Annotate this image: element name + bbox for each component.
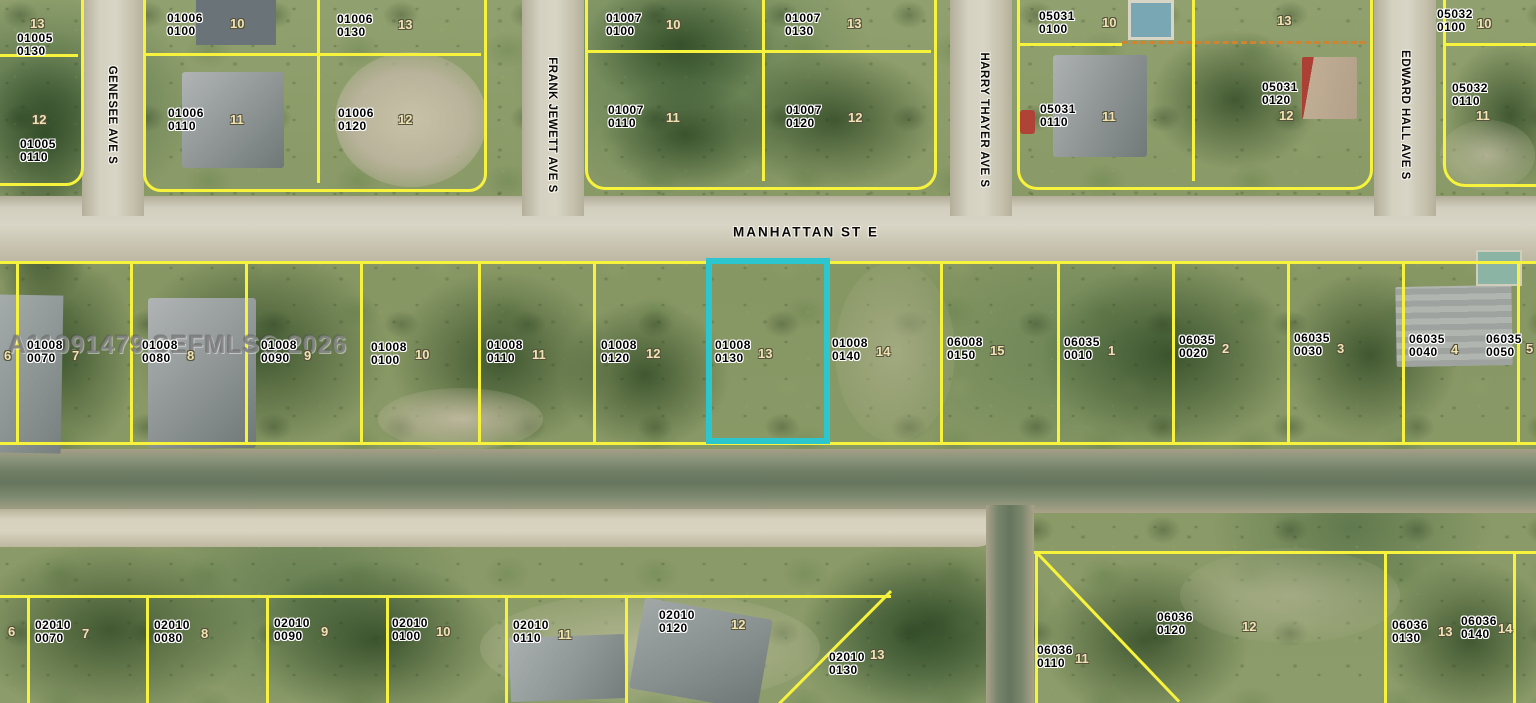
- block-line: [1034, 551, 1536, 554]
- parcel-label-06008-0150: 060080150: [947, 336, 983, 362]
- parcel-label-06035-0020: 060350020: [1179, 334, 1215, 360]
- parcel-label-01008-0080: 010080080: [142, 339, 178, 365]
- parcel-label-06036-0120: 060360120: [1157, 611, 1193, 637]
- street-label-edward-hall-ave-s: EDWARD HALL AVE S: [1399, 50, 1411, 180]
- lot-number: 12: [1279, 108, 1293, 123]
- lot-number: 11: [230, 112, 244, 127]
- lot-number: 13: [1438, 624, 1452, 639]
- lot-line: [27, 596, 30, 703]
- parcel-label-02010-0100: 020100100: [392, 617, 428, 643]
- lot-number: 8: [201, 626, 208, 641]
- parcel-label-02010-0120: 020100120: [659, 609, 695, 635]
- parcel-label-02010-0110: 020100110: [513, 619, 549, 645]
- parcel-label-05031-0120: 050310120: [1262, 81, 1298, 107]
- parcel-label-06036-0130: 060360130: [1392, 619, 1428, 645]
- lot-line: [762, 0, 765, 181]
- parcel-label-01006-0120: 010060120: [338, 107, 374, 133]
- lot-line: [1057, 262, 1060, 442]
- lot-line: [1443, 43, 1536, 46]
- lot-number: 11: [1476, 108, 1490, 123]
- swimming-pool: [1476, 250, 1522, 286]
- parcel-label-06035-0050: 060350050: [1486, 333, 1522, 359]
- parcel-label-05031-0100: 050310100: [1039, 10, 1075, 36]
- clearing-patch: [1180, 548, 1400, 643]
- lot-number: 7: [82, 626, 89, 641]
- parcel-label-01008-0140: 010080140: [832, 337, 868, 363]
- lot-number: 11: [1075, 651, 1089, 666]
- parcel-label-01007-0130: 010070130: [785, 12, 821, 38]
- parcel-label-01008-0070: 010080070: [27, 339, 63, 365]
- parcel-label-01008-0120: 010080120: [601, 339, 637, 365]
- lot-line: [1384, 551, 1387, 703]
- parcel-label-01007-0110: 010070110: [608, 104, 644, 130]
- lot-number: 4: [1451, 342, 1458, 357]
- lot-number: 10: [666, 17, 680, 32]
- lot-line: [146, 596, 149, 703]
- parcel-label-06035-0010: 060350010: [1064, 336, 1100, 362]
- lot-line: [317, 0, 320, 183]
- lot-number: 12: [731, 617, 745, 632]
- lot-number: 13: [847, 16, 861, 31]
- lot-line: [1513, 551, 1516, 703]
- parcel-label-01008-0090: 010080090: [261, 339, 297, 365]
- street-label-frank-jewett-ave-s: FRANK JEWETT AVE S: [546, 57, 558, 193]
- parcel-label-06035-0030: 060350030: [1294, 332, 1330, 358]
- dashed-boundary-line: [1122, 41, 1366, 44]
- lot-line: [1402, 262, 1405, 442]
- parcel-label-05032-0100: 050320100: [1437, 8, 1473, 34]
- parcel-label-06035-0040: 060350040: [1409, 333, 1445, 359]
- lot-line: [625, 596, 628, 703]
- lot-number: 13: [870, 647, 884, 662]
- dirt-road: [0, 509, 1005, 547]
- lot-number: 11: [558, 627, 572, 642]
- lot-number: 14: [876, 344, 890, 359]
- parcel-label-05031-0110: 050310110: [1040, 103, 1076, 129]
- parcel-label-01008-0100: 010080100: [371, 341, 407, 367]
- lot-line: [266, 596, 269, 703]
- lot-line: [593, 262, 596, 442]
- parcel-label-01005-0130: 010050130: [17, 32, 53, 58]
- parcel-label-02010-0080: 020100080: [154, 619, 190, 645]
- lot-number: 11: [532, 347, 546, 362]
- lot-number: 12: [32, 112, 46, 127]
- aerial-parcel-map: A11091479 SEFMLS© 2026 01005013013010050…: [0, 0, 1536, 703]
- lot-number: 10: [436, 624, 450, 639]
- lot-number: 10: [230, 16, 244, 31]
- lot-line: [1287, 262, 1290, 442]
- lot-number: 9: [321, 624, 328, 639]
- lot-line: [1192, 0, 1195, 181]
- lot-number: 10: [415, 347, 429, 362]
- lot-line: [940, 262, 943, 442]
- lot-line: [1017, 43, 1122, 46]
- lot-line: [585, 50, 931, 53]
- canal-vertical: [986, 505, 1034, 703]
- lot-number: 14: [1498, 621, 1512, 636]
- street-label-genesee-ave-s: GENESEE AVE S: [106, 66, 118, 165]
- parcel-label-02010-0090: 020100090: [274, 617, 310, 643]
- lot-number: 8: [187, 348, 194, 363]
- parcel-label-02010-0070: 020100070: [35, 619, 71, 645]
- lot-line: [505, 596, 508, 703]
- house-roof: [148, 298, 256, 448]
- parcel-label-01008-0130: 010080130: [715, 339, 751, 365]
- lot-number: 6: [4, 348, 11, 363]
- block-line: [0, 595, 891, 598]
- lot-number: 12: [1242, 619, 1256, 634]
- lot-number: 10: [1477, 16, 1491, 31]
- lot-number: 12: [848, 110, 862, 125]
- parcel-label-01007-0100: 010070100: [606, 12, 642, 38]
- lot-line: [1172, 262, 1175, 442]
- lot-line: [1035, 551, 1038, 703]
- dirt-patch: [378, 388, 543, 450]
- lot-line: [478, 262, 481, 442]
- lot-number: 3: [1337, 341, 1344, 356]
- lot-number: 12: [646, 346, 660, 361]
- parcel-label-06036-0140: 060360140: [1461, 615, 1497, 641]
- parcel-label-01007-0120: 010070120: [786, 104, 822, 130]
- lot-line: [143, 53, 481, 56]
- lot-number: 7: [72, 348, 79, 363]
- parcel-label-02010-0130: 020100130: [829, 651, 865, 677]
- lot-number: 11: [1102, 109, 1116, 124]
- parcel-label-01008-0110: 010080110: [487, 339, 523, 365]
- lot-number: 2: [1222, 341, 1229, 356]
- canal-horizontal: [0, 449, 1536, 513]
- lot-number: 13: [30, 16, 44, 31]
- street-label-manhattan-st-e: MANHATTAN ST E: [733, 225, 879, 240]
- parcel-label-01006-0100: 010060100: [167, 12, 203, 38]
- parcel-label-01006-0130: 010060130: [337, 13, 373, 39]
- lot-number: 13: [398, 17, 412, 32]
- lot-number: 11: [666, 110, 680, 125]
- lot-number: 12: [398, 112, 412, 127]
- lot-number: 6: [8, 624, 15, 639]
- tree-cluster: [560, 300, 730, 450]
- parcel-label-05032-0110: 050320110: [1452, 82, 1488, 108]
- lot-number: 10: [1102, 15, 1116, 30]
- lot-number: 13: [758, 346, 772, 361]
- house-roof: [0, 294, 63, 453]
- lot-number: 9: [304, 348, 311, 363]
- lot-number: 1: [1108, 343, 1115, 358]
- parcel-label-01006-0110: 010060110: [168, 107, 204, 133]
- street-label-harry-thayer-ave-s: HARRY THAYER AVE S: [978, 52, 990, 187]
- lot-line: [386, 596, 389, 703]
- parcel-label-06036-0110: 060360110: [1037, 644, 1073, 670]
- parcel-label-01005-0110: 010050110: [20, 138, 56, 164]
- lot-line: [360, 262, 363, 442]
- lot-number: 13: [1277, 13, 1291, 28]
- lot-number: 5: [1526, 341, 1533, 356]
- lot-number: 15: [990, 343, 1004, 358]
